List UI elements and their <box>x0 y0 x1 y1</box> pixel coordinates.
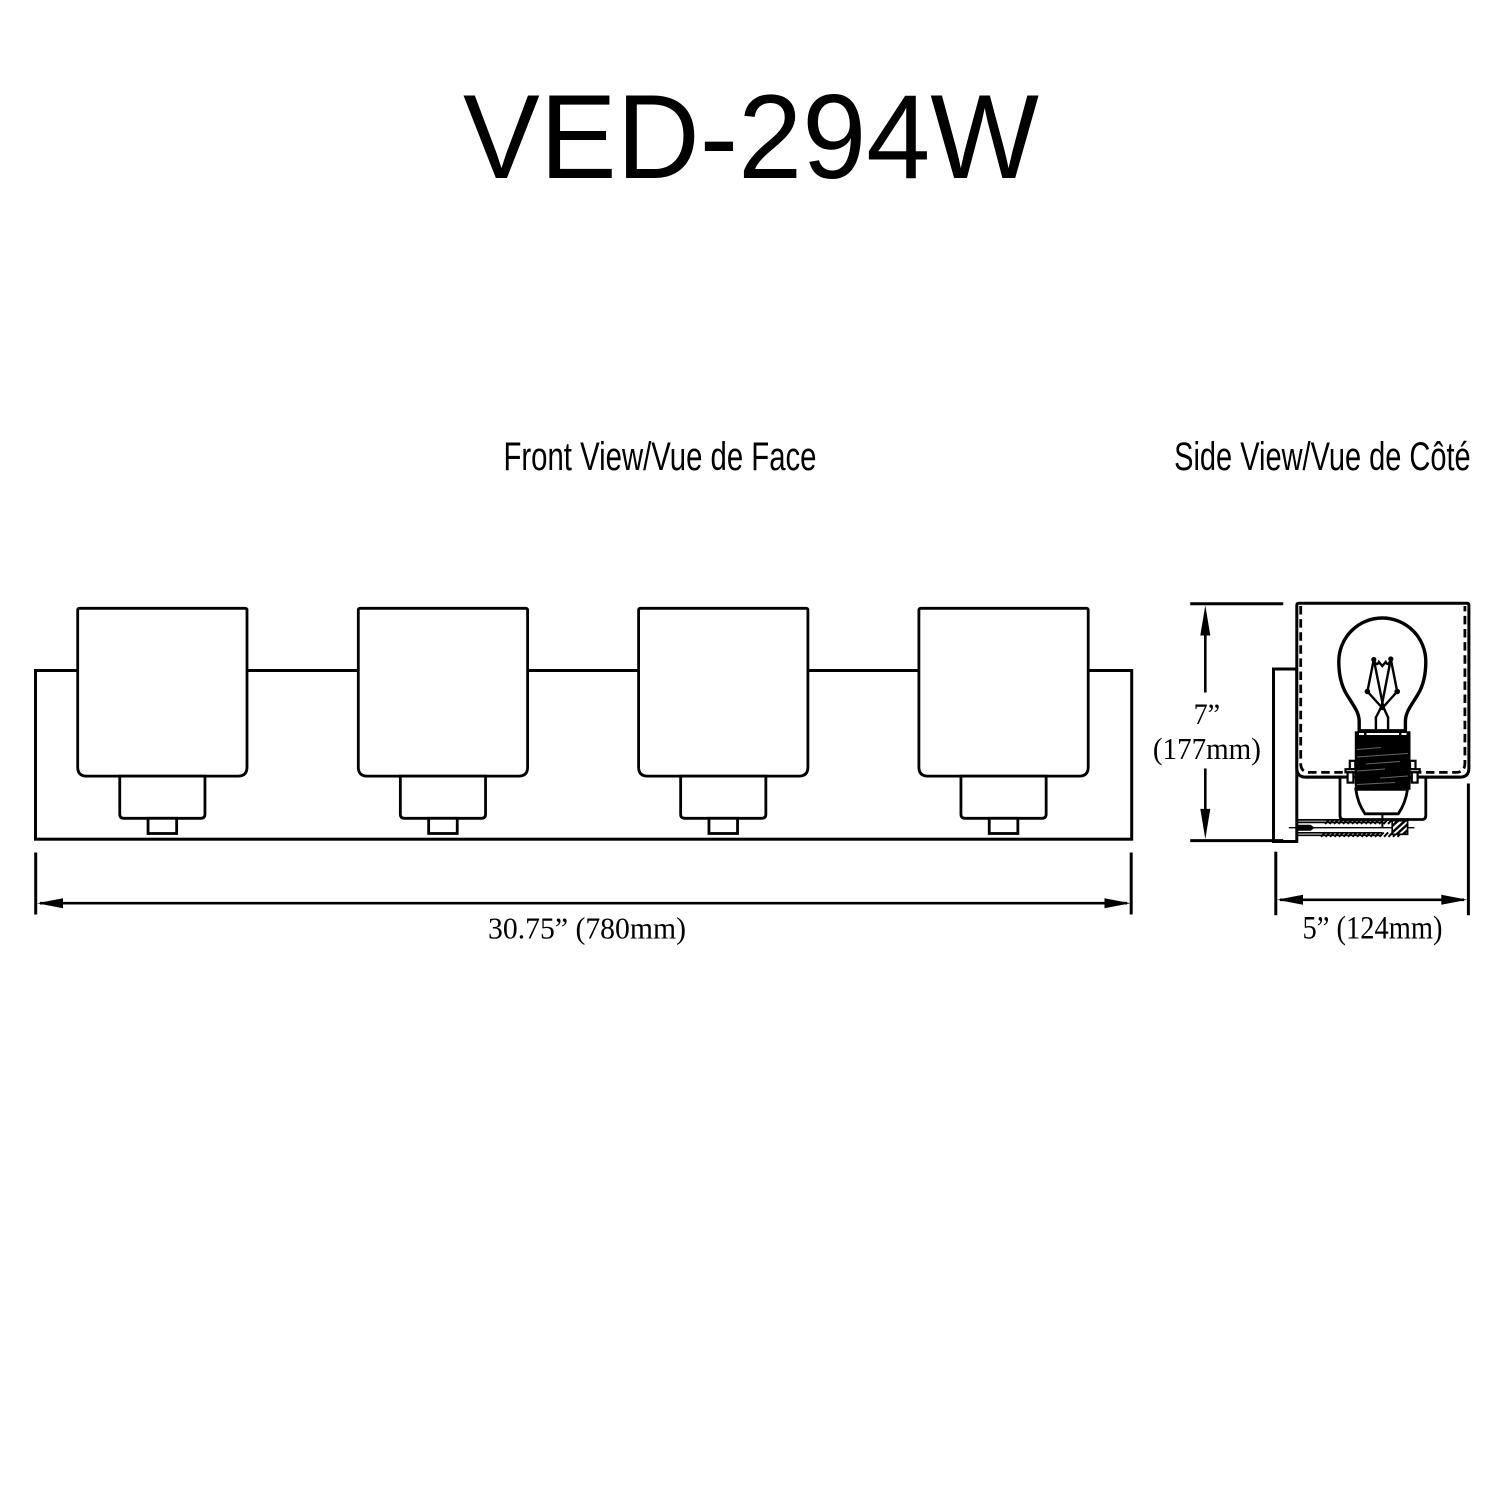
svg-text:30.75” (780mm): 30.75” (780mm) <box>488 911 686 946</box>
svg-text:Side View/Vue de Côté: Side View/Vue de Côté <box>1174 435 1471 479</box>
svg-text:VED-294W: VED-294W <box>463 70 1039 204</box>
svg-text:Front View/Vue de Face: Front View/Vue de Face <box>504 435 817 479</box>
svg-text:(177mm): (177mm) <box>1153 731 1261 766</box>
svg-text:5” (124mm): 5” (124mm) <box>1303 910 1443 946</box>
svg-text:7”: 7” <box>1194 698 1221 731</box>
